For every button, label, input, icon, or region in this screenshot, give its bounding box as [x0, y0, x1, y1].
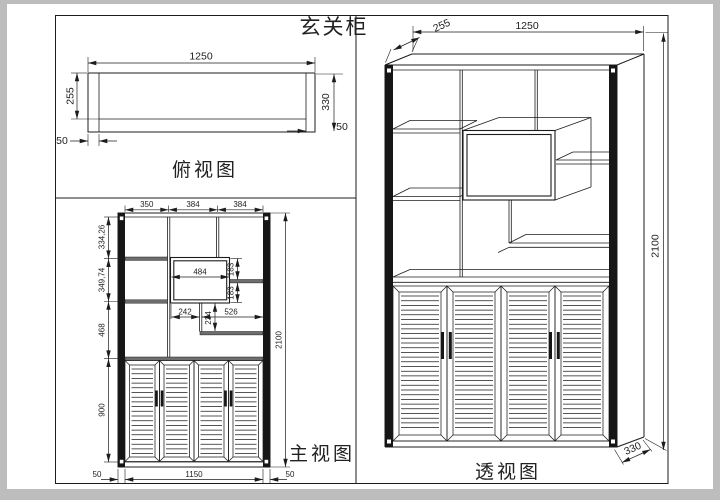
dim-top-total-depth: 330 — [320, 93, 332, 111]
dim-bay1: 350 — [140, 200, 154, 209]
drawing-title: 玄关柜 — [300, 16, 369, 39]
persp-left-post — [385, 65, 393, 447]
dim-base-left: 50 — [93, 470, 102, 479]
door-handle — [449, 332, 452, 359]
door-handle — [224, 391, 227, 407]
paper-sheet — [7, 4, 713, 489]
front-left-post — [118, 213, 125, 467]
dim-step-left: 242 — [178, 308, 192, 317]
dim-base-right: 50 — [286, 470, 295, 479]
dim-persp-height: 2100 — [650, 234, 662, 258]
cad-sheet: 玄关柜 1250 255 330 50 50 — [0, 0, 720, 500]
dim-row3: 468 — [98, 323, 107, 337]
dim-top-post-right: 50 — [336, 121, 348, 133]
dim-bay3: 384 — [233, 200, 247, 209]
dim-top-post-left: 50 — [56, 135, 68, 147]
door-handle — [557, 332, 560, 359]
dim-niche-width: 484 — [193, 268, 207, 277]
front-view-label: 主视图 — [289, 443, 355, 465]
dim-top-width: 1250 — [189, 51, 213, 63]
dim-step-right: 526 — [224, 308, 238, 317]
door-handle — [161, 391, 164, 407]
shelf-right-mid — [230, 280, 264, 283]
door-handle — [230, 391, 233, 407]
dim-persp-width: 1250 — [515, 20, 539, 32]
shelf-level2-left — [125, 300, 168, 303]
perspective-view-label: 透视图 — [475, 461, 541, 483]
dim-top-body-depth: 255 — [65, 87, 77, 105]
top-view-label: 俯视图 — [172, 159, 238, 181]
dim-row1: 334,26 — [98, 224, 107, 249]
dim-base-mid: 1150 — [185, 470, 203, 479]
door-handle — [549, 332, 552, 359]
dim-total-height: 2100 — [275, 331, 284, 349]
shelf-above-doors — [125, 357, 263, 360]
dim-step-drop: 234 — [204, 311, 213, 325]
shelf-level1-left — [125, 257, 168, 260]
front-right-post — [263, 213, 270, 467]
shelf-step — [200, 332, 263, 335]
persp-right-post — [609, 65, 617, 447]
dim-row2: 349,74 — [98, 267, 107, 292]
dim-niche-lower: 183 — [227, 286, 236, 300]
door-handle — [155, 391, 158, 407]
dim-doors-height: 900 — [98, 403, 107, 417]
door-handle — [441, 332, 444, 359]
dim-niche-upper: 183 — [227, 262, 236, 276]
dim-bay2: 384 — [186, 200, 200, 209]
